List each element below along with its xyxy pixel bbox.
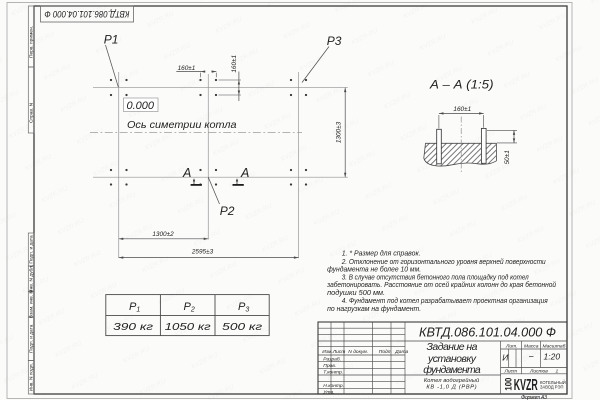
svg-text:–: – bbox=[528, 352, 534, 361]
svg-text:KVZR: KVZR bbox=[514, 377, 538, 394]
svg-text:1300±2: 1300±2 bbox=[152, 231, 174, 238]
svg-text:160±1: 160±1 bbox=[231, 54, 238, 72]
svg-text:Задание на: Задание на bbox=[427, 341, 478, 353]
svg-text:Р2: Р2 bbox=[220, 204, 235, 218]
svg-text:1050 кг: 1050 кг bbox=[165, 322, 211, 333]
svg-text:1: 1 bbox=[556, 368, 559, 374]
svg-text:2595±3: 2595±3 bbox=[191, 249, 214, 256]
svg-text:Формат А3: Формат А3 bbox=[521, 395, 547, 400]
svg-text:по нагрузкам на фундамент.: по нагрузкам на фундамент. bbox=[327, 305, 421, 313]
svg-text:390 кг: 390 кг bbox=[113, 322, 153, 333]
svg-text:1:20: 1:20 bbox=[544, 351, 561, 361]
svg-text:КВ -1,0 Д (РВР): КВ -1,0 Д (РВР) bbox=[426, 385, 476, 391]
svg-text:100: 100 bbox=[504, 378, 514, 391]
svg-text:4. Фундамент под котел разраба: 4. Фундамент под котел разрабатывает про… bbox=[342, 297, 548, 305]
svg-text:2. Отклонение от горизонтально: 2. Отклонение от горизонтального уровня … bbox=[341, 258, 546, 266]
svg-text:И: И bbox=[502, 352, 509, 362]
svg-text:КВТД.086.101.04.000 Ф: КВТД.086.101.04.000 Ф bbox=[45, 9, 130, 19]
svg-text:Масса: Масса bbox=[524, 343, 539, 349]
svg-text:КВТД.086.101.04.000 Ф: КВТД.086.101.04.000 Ф bbox=[419, 324, 556, 339]
svg-text:Инв. N подл.: Инв. N подл. bbox=[29, 363, 35, 391]
svg-text:Утв.: Утв. bbox=[323, 389, 334, 395]
svg-text:Котел водогрейный: Котел водогрейный bbox=[424, 377, 479, 384]
svg-text:забетонировать. Расстояние от: забетонировать. Расстояние от осей крайн… bbox=[326, 281, 556, 289]
svg-text:N докум.: N докум. bbox=[348, 349, 368, 355]
svg-text:Масштаб: Масштаб bbox=[543, 343, 566, 349]
svg-text:Пров.: Пров. bbox=[323, 363, 336, 369]
svg-text:Подп. и дата: Подп. и дата bbox=[29, 235, 35, 264]
svg-text:Лист: Лист bbox=[504, 368, 518, 374]
svg-text:Лит.: Лит. bbox=[505, 343, 517, 349]
svg-text:Подп. и дата: Подп. и дата bbox=[29, 324, 35, 353]
svg-text:Справ. N: Справ. N bbox=[29, 102, 35, 123]
svg-text:160±1: 160±1 bbox=[178, 65, 196, 72]
svg-text:Н.контр.: Н.контр. bbox=[323, 383, 344, 389]
svg-text:Т.контр.: Т.контр. bbox=[323, 370, 343, 376]
svg-text:160±1: 160±1 bbox=[453, 106, 471, 113]
svg-text:Р3: Р3 bbox=[327, 34, 342, 48]
svg-text:500 кг: 500 кг bbox=[222, 322, 262, 333]
svg-text:Взам. инв. N: Взам. инв. N bbox=[29, 290, 35, 319]
svg-text:фундамента: фундамента bbox=[423, 364, 481, 376]
svg-text:А: А bbox=[240, 166, 249, 180]
svg-text:3. В случае отсутствия бетонно: 3. В случае отсутствия бетонного пола пл… bbox=[342, 273, 529, 281]
svg-text:Р1: Р1 bbox=[104, 33, 119, 47]
svg-text:1300±3: 1300±3 bbox=[336, 121, 343, 143]
svg-text:Перв. примен.: Перв. примен. bbox=[29, 26, 35, 58]
svg-text:Подп.: Подп. bbox=[379, 349, 392, 355]
svg-text:1. * Размер для справок.: 1. * Размер для справок. bbox=[342, 250, 421, 258]
svg-text:Листов: Листов bbox=[529, 368, 548, 374]
svg-text:0.000: 0.000 bbox=[127, 100, 155, 112]
svg-text:ЗАВОД РЭП: ЗАВОД РЭП bbox=[540, 385, 563, 390]
svg-text:подушки 500 мм.: подушки 500 мм. bbox=[327, 289, 385, 297]
svg-text:фундамента не более 10 мм.: фундамента не более 10 мм. bbox=[327, 265, 421, 273]
svg-text:А – А (1:5): А – А (1:5) bbox=[429, 78, 494, 92]
svg-text:Ось симетрии котла: Ось симетрии котла bbox=[127, 119, 237, 131]
svg-text:А: А bbox=[182, 166, 191, 180]
svg-text:Изм.Лист: Изм.Лист bbox=[322, 349, 345, 355]
svg-text:Разраб.: Разраб. bbox=[323, 356, 341, 362]
svg-text:Инв. N дубл.: Инв. N дубл. bbox=[29, 265, 35, 293]
svg-text:Дата: Дата bbox=[394, 349, 408, 355]
svg-text:50±1: 50±1 bbox=[504, 150, 511, 165]
